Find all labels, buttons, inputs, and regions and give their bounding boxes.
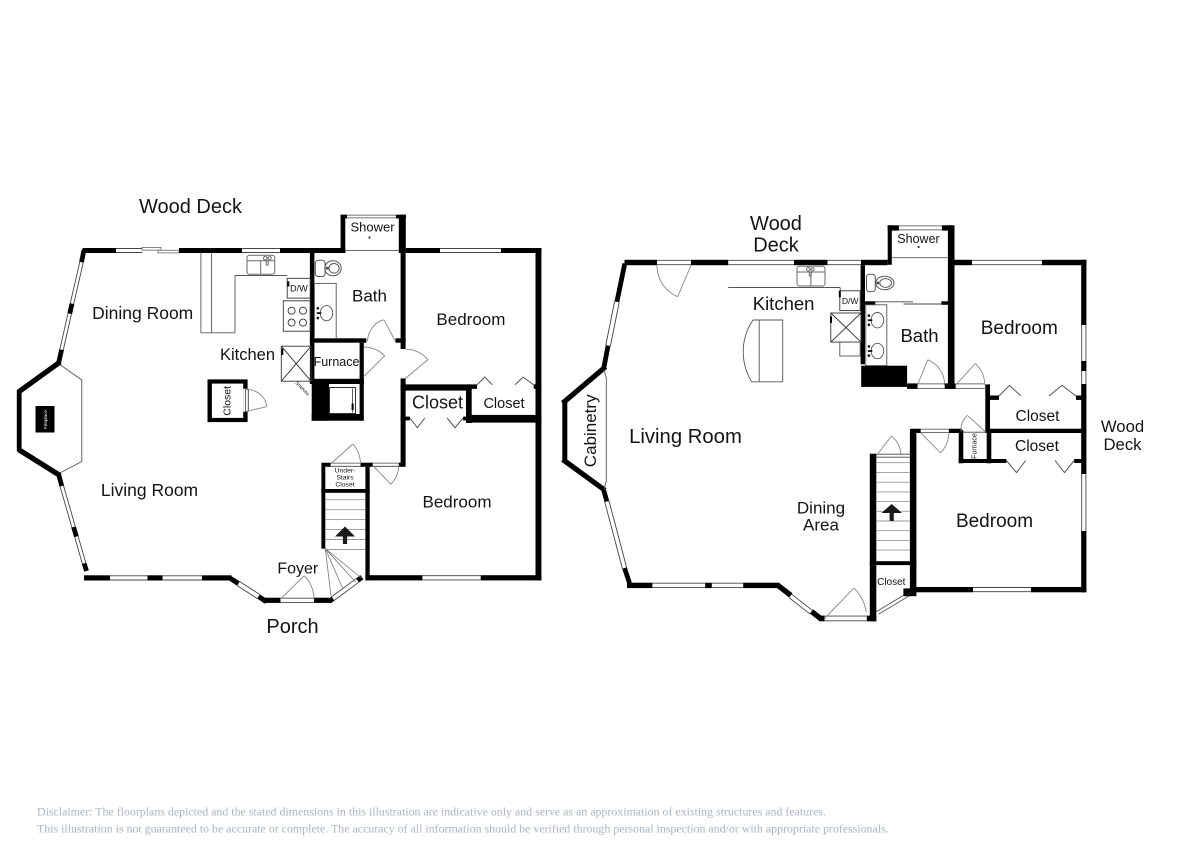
svg-text:Bedroom: Bedroom	[956, 511, 1033, 532]
svg-text:Wood: Wood	[1101, 417, 1144, 436]
svg-text:D/W: D/W	[290, 284, 308, 294]
svg-text:Bedroom: Bedroom	[981, 318, 1058, 339]
svg-text:Closet: Closet	[877, 577, 906, 588]
svg-text:Fireplace: Fireplace	[43, 410, 48, 429]
svg-text:Area: Area	[803, 516, 839, 535]
svg-text:Dining Room: Dining Room	[92, 303, 193, 323]
svg-text:Bedroom: Bedroom	[423, 493, 492, 512]
svg-text:Kitchen: Kitchen	[220, 346, 275, 364]
svg-text:Wood: Wood	[750, 213, 802, 235]
svg-text:D/W: D/W	[842, 296, 860, 306]
svg-text:Bath: Bath	[352, 286, 387, 305]
svg-text:This illustration is not guara: This illustration is not guaranteed to b…	[37, 822, 889, 836]
svg-text:Foyer: Foyer	[277, 561, 319, 578]
svg-text:Wood Deck: Wood Deck	[139, 196, 243, 218]
svg-text:Cabinetry: Cabinetry	[581, 394, 600, 467]
svg-text:Under-: Under-	[335, 468, 356, 475]
svg-text:Closet: Closet	[483, 396, 524, 412]
svg-text:Bath: Bath	[900, 325, 938, 346]
svg-text:Furnace: Furnace	[971, 433, 978, 459]
svg-text:Living Room: Living Room	[629, 426, 742, 448]
svg-text:Closet: Closet	[1016, 408, 1061, 425]
svg-text:Disclaimer: The floorplans dep: Disclaimer: The floorplans depicted and …	[37, 805, 826, 819]
svg-text:Shower: Shower	[897, 232, 939, 246]
svg-text:Shower: Shower	[350, 220, 395, 235]
svg-text:Closet: Closet	[412, 393, 463, 413]
svg-text:Bedroom: Bedroom	[436, 310, 505, 329]
svg-text:Closet: Closet	[335, 482, 354, 489]
svg-text:Stairs: Stairs	[336, 475, 354, 482]
svg-text:Closet: Closet	[1015, 438, 1060, 455]
svg-text:Living Room: Living Room	[101, 480, 198, 500]
svg-text:Deck: Deck	[1103, 435, 1142, 454]
svg-text:Closet: Closet	[222, 386, 234, 416]
svg-text:Porch: Porch	[266, 616, 318, 638]
svg-text:Furnace: Furnace	[314, 355, 360, 369]
svg-text:Kitchen: Kitchen	[753, 293, 815, 314]
svg-text:Deck: Deck	[753, 235, 800, 257]
